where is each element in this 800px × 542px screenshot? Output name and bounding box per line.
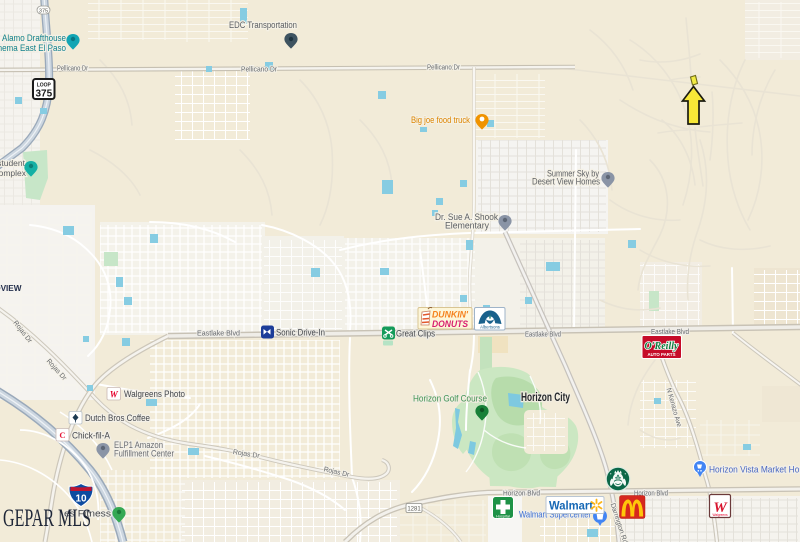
svg-text:Albertsons: Albertsons	[480, 325, 500, 330]
svg-text:Alamo Drafthouse: Alamo Drafthouse	[2, 33, 66, 43]
svg-text:C: C	[59, 430, 65, 440]
svg-text:EDC Transportation: EDC Transportation	[229, 20, 297, 30]
svg-text:Pellicano Dr: Pellicano Dr	[241, 67, 278, 74]
svg-text:student: student	[0, 158, 26, 168]
svg-text:375: 375	[39, 8, 48, 14]
svg-text:Big joe food truck: Big joe food truck	[411, 115, 470, 125]
svg-text:Sonic Drive-In: Sonic Drive-In	[276, 328, 325, 338]
svg-text:Desert View Homes: Desert View Homes	[532, 177, 600, 187]
svg-text:W: W	[110, 390, 119, 400]
svg-text:Horizon Golf Course: Horizon Golf Course	[413, 394, 487, 404]
svg-text:DONUTS: DONUTS	[432, 319, 468, 329]
svg-text:Walgreens Photo: Walgreens Photo	[124, 389, 185, 399]
svg-text:Walgreens: Walgreens	[712, 513, 728, 517]
svg-text:OVIEW: OVIEW	[0, 284, 22, 293]
svg-text:AUTO PARTS: AUTO PARTS	[648, 352, 677, 358]
svg-text:Elementary: Elementary	[445, 221, 489, 231]
svg-text:Horizon Vista Market Hori: Horizon Vista Market Hori	[709, 465, 800, 475]
svg-text:1281: 1281	[407, 507, 421, 513]
svg-text:complex: complex	[0, 168, 27, 178]
svg-text:Horizon City: Horizon City	[521, 392, 570, 404]
svg-text:Walmart: Walmart	[549, 501, 593, 513]
svg-text:Eastlake Blvd: Eastlake Blvd	[525, 332, 561, 339]
svg-text:Hospital: Hospital	[496, 515, 510, 519]
svg-text:DUNKIN': DUNKIN'	[432, 310, 469, 320]
svg-text:Pellicano Dr: Pellicano Dr	[427, 65, 461, 72]
svg-text:10: 10	[75, 494, 87, 505]
svg-text:Eastlake Blvd: Eastlake Blvd	[651, 329, 689, 336]
svg-text:Fulfillment Center: Fulfillment Center	[114, 449, 174, 459]
svg-text:Chick-fil-A: Chick-fil-A	[72, 431, 110, 441]
svg-text:GEPAR MLS: GEPAR MLS	[3, 505, 91, 532]
svg-text:375: 375	[35, 89, 52, 100]
svg-text:Dutch Bros Coffee: Dutch Bros Coffee	[85, 413, 150, 423]
svg-text:Great Clips: Great Clips	[396, 329, 435, 339]
svg-text:Eastlake Blvd: Eastlake Blvd	[197, 331, 240, 338]
svg-text:Pellicano Dr: Pellicano Dr	[57, 66, 89, 73]
svg-text:O'Reilly: O'Reilly	[645, 341, 679, 352]
svg-text:Cinema East El Paso: Cinema East El Paso	[0, 43, 66, 53]
